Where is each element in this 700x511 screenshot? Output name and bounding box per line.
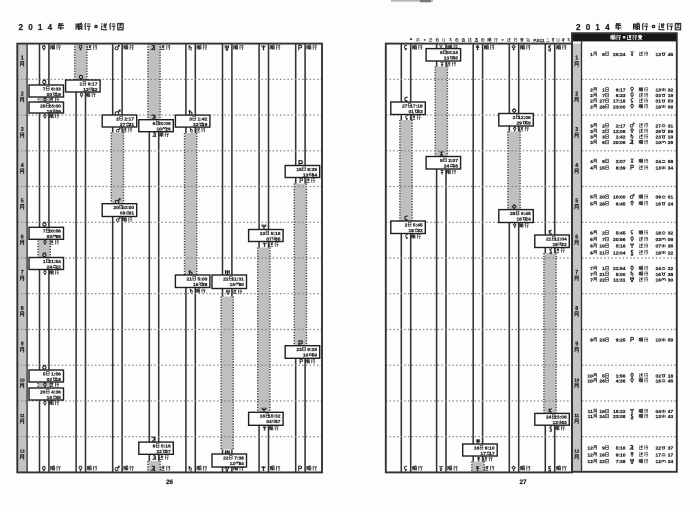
svg-text:27: 27 xyxy=(120,122,126,128)
svg-text:10: 10 xyxy=(303,353,309,359)
svg-text:6:17: 6:17 xyxy=(88,81,98,87)
svg-text:10:00: 10:00 xyxy=(613,195,626,201)
svg-text:19: 19 xyxy=(55,92,61,98)
svg-text:18: 18 xyxy=(656,250,662,256)
svg-text:4: 4 xyxy=(575,163,578,169)
svg-text:2: 2 xyxy=(576,23,581,32)
svg-text:8:39: 8:39 xyxy=(307,167,317,173)
svg-text:16: 16 xyxy=(599,452,605,458)
svg-text:58: 58 xyxy=(453,163,459,169)
svg-text:10: 10 xyxy=(20,377,25,382)
svg-text:20:56: 20:56 xyxy=(48,229,61,235)
svg-text:23: 23 xyxy=(656,135,662,141)
svg-text:32: 32 xyxy=(92,87,98,93)
svg-text:6: 6 xyxy=(575,234,578,240)
svg-text:23:08: 23:08 xyxy=(554,415,567,421)
svg-text:21: 21 xyxy=(546,236,552,242)
svg-text:28: 28 xyxy=(599,104,605,110)
svg-text:3: 3 xyxy=(575,127,578,133)
svg-text:3: 3 xyxy=(602,135,605,141)
svg-text:22: 22 xyxy=(156,449,162,455)
svg-text:20:06: 20:06 xyxy=(158,121,171,127)
svg-text:45: 45 xyxy=(668,378,674,384)
svg-text:30: 30 xyxy=(238,282,244,288)
svg-text:01: 01 xyxy=(656,99,662,105)
svg-text:22: 22 xyxy=(561,242,567,248)
svg-text:20:56: 20:56 xyxy=(613,237,626,243)
svg-text:6:45: 6:45 xyxy=(521,211,531,217)
svg-text:45: 45 xyxy=(453,55,459,61)
svg-text:10: 10 xyxy=(656,140,662,146)
svg-text:11: 11 xyxy=(574,413,579,418)
svg-text:12:06: 12:06 xyxy=(613,129,626,135)
svg-text:20:24: 20:24 xyxy=(613,52,626,58)
svg-text:53: 53 xyxy=(417,109,423,115)
svg-text:22: 22 xyxy=(223,276,229,282)
svg-text:35: 35 xyxy=(275,236,281,242)
svg-text:01: 01 xyxy=(668,195,674,201)
svg-text:12: 12 xyxy=(20,449,25,454)
svg-text:26: 26 xyxy=(40,389,46,395)
svg-text:03: 03 xyxy=(656,93,662,99)
svg-text:09: 09 xyxy=(120,211,126,217)
svg-text:37: 37 xyxy=(165,449,171,455)
svg-text:2: 2 xyxy=(21,91,24,97)
svg-text:6: 6 xyxy=(602,52,605,58)
svg-text:16: 16 xyxy=(474,445,480,451)
svg-text:34: 34 xyxy=(312,172,318,178)
svg-text:13: 13 xyxy=(444,55,450,61)
svg-text:16: 16 xyxy=(47,395,53,401)
svg-text:23: 23 xyxy=(599,338,605,344)
svg-text:2:17: 2:17 xyxy=(616,123,626,129)
svg-text:2: 2 xyxy=(590,104,593,110)
svg-text:7: 7 xyxy=(590,266,593,272)
svg-text:12:06: 12:06 xyxy=(518,115,531,121)
svg-text:3: 3 xyxy=(189,116,192,122)
svg-text:26: 26 xyxy=(599,378,605,384)
svg-text:2:17: 2:17 xyxy=(124,116,134,122)
svg-text:19: 19 xyxy=(668,93,674,99)
svg-text:20: 20 xyxy=(113,205,119,211)
svg-text:9:25: 9:25 xyxy=(616,338,626,344)
svg-text:26: 26 xyxy=(165,127,171,133)
svg-text:12: 12 xyxy=(587,446,593,452)
svg-text:1: 1 xyxy=(43,259,46,265)
svg-text:28: 28 xyxy=(510,211,516,217)
svg-text:3: 3 xyxy=(590,123,593,129)
svg-text:7: 7 xyxy=(43,86,46,92)
svg-text:4: 4 xyxy=(590,166,593,172)
svg-text:16: 16 xyxy=(656,378,662,384)
svg-text:9: 9 xyxy=(590,338,593,344)
svg-text:2: 2 xyxy=(602,123,605,129)
svg-text:21: 21 xyxy=(599,250,605,256)
svg-text:12:04: 12:04 xyxy=(554,236,567,242)
svg-text:12: 12 xyxy=(230,461,236,467)
svg-text:04: 04 xyxy=(266,419,272,425)
svg-text:1: 1 xyxy=(602,88,605,94)
svg-text:26: 26 xyxy=(166,479,174,486)
svg-text:1: 1 xyxy=(590,52,593,58)
svg-text:2: 2 xyxy=(575,91,578,97)
svg-text:2: 2 xyxy=(590,93,593,99)
svg-text:34: 34 xyxy=(668,459,674,465)
svg-text:0: 0 xyxy=(586,23,591,32)
svg-text:11: 11 xyxy=(588,414,593,420)
svg-text:59: 59 xyxy=(668,129,674,135)
svg-text:20:06: 20:06 xyxy=(613,140,626,146)
svg-text:9: 9 xyxy=(602,159,605,165)
svg-text:12: 12 xyxy=(587,459,593,465)
svg-text:10: 10 xyxy=(156,127,162,133)
svg-text:13: 13 xyxy=(656,414,662,420)
svg-text:09: 09 xyxy=(55,234,61,240)
svg-text:16: 16 xyxy=(516,216,522,222)
svg-text:24: 24 xyxy=(599,414,605,420)
svg-text:2:07: 2:07 xyxy=(448,158,458,164)
svg-text:37: 37 xyxy=(668,446,674,452)
svg-text:16: 16 xyxy=(656,277,662,283)
svg-text:7:38: 7:38 xyxy=(616,459,626,465)
svg-text:13: 13 xyxy=(656,88,662,94)
svg-text:2: 2 xyxy=(116,116,119,122)
svg-text:5: 5 xyxy=(575,199,578,205)
svg-text:16: 16 xyxy=(656,201,662,207)
svg-text:5:16: 5:16 xyxy=(271,231,281,237)
svg-text:4: 4 xyxy=(605,23,610,32)
svg-text:6: 6 xyxy=(153,121,156,127)
svg-text:24: 24 xyxy=(656,266,662,272)
svg-text:18: 18 xyxy=(55,377,61,383)
svg-text:24: 24 xyxy=(444,163,450,169)
svg-text:1: 1 xyxy=(602,266,605,272)
svg-text:29: 29 xyxy=(656,129,662,135)
svg-text:9: 9 xyxy=(153,443,156,449)
svg-text:32: 32 xyxy=(668,88,674,94)
svg-text:18: 18 xyxy=(656,104,662,110)
svg-text:5: 5 xyxy=(590,195,593,201)
svg-text:23:00: 23:00 xyxy=(613,104,626,110)
svg-text:24: 24 xyxy=(47,264,53,270)
svg-text:1: 1 xyxy=(79,81,82,87)
svg-text:17:18: 17:18 xyxy=(613,99,626,105)
svg-text:5:00: 5:00 xyxy=(616,272,626,278)
svg-text:15: 15 xyxy=(599,166,605,172)
svg-text:10: 10 xyxy=(599,244,605,250)
svg-text:38: 38 xyxy=(202,282,208,288)
svg-text:7: 7 xyxy=(575,270,578,276)
svg-text:9: 9 xyxy=(575,342,578,348)
svg-text:28: 28 xyxy=(40,103,46,109)
svg-text:7: 7 xyxy=(590,277,593,283)
svg-text:17: 17 xyxy=(489,451,495,457)
svg-text:7: 7 xyxy=(21,270,24,276)
svg-text:12: 12 xyxy=(656,459,662,465)
svg-text:34: 34 xyxy=(668,166,674,172)
svg-text:6:33: 6:33 xyxy=(616,93,626,99)
svg-text:2: 2 xyxy=(590,88,593,94)
svg-text:4: 4 xyxy=(48,23,53,32)
svg-text:19: 19 xyxy=(202,122,208,128)
svg-text:5:00: 5:00 xyxy=(198,276,208,282)
svg-text:02: 02 xyxy=(47,377,53,383)
svg-text:16: 16 xyxy=(656,272,662,278)
svg-text:59: 59 xyxy=(312,353,318,359)
svg-text:6:45: 6:45 xyxy=(616,201,626,207)
svg-text:12:04: 12:04 xyxy=(613,250,626,256)
svg-text:11:31: 11:31 xyxy=(613,277,626,283)
svg-text:17: 17 xyxy=(668,452,674,458)
svg-text:09: 09 xyxy=(55,109,61,115)
svg-text:23: 23 xyxy=(193,122,199,128)
svg-text:1:42: 1:42 xyxy=(616,135,626,141)
svg-text:2: 2 xyxy=(19,23,24,32)
svg-text:13: 13 xyxy=(83,87,89,93)
svg-text:9: 9 xyxy=(21,342,24,348)
svg-text:18: 18 xyxy=(47,109,53,115)
svg-text:13: 13 xyxy=(552,420,558,426)
svg-text:4:36: 4:36 xyxy=(616,378,626,384)
svg-text:9:10: 9:10 xyxy=(485,445,495,451)
svg-text:11: 11 xyxy=(20,413,25,418)
svg-text:10:00: 10:00 xyxy=(122,205,135,211)
svg-text:03: 03 xyxy=(47,234,53,240)
svg-text:7: 7 xyxy=(43,229,46,235)
svg-text:20:24: 20:24 xyxy=(445,50,458,56)
svg-text:58: 58 xyxy=(668,159,674,165)
svg-text:17: 17 xyxy=(656,452,662,458)
svg-text:30: 30 xyxy=(668,277,674,283)
svg-text:13: 13 xyxy=(656,166,662,172)
svg-text:1: 1 xyxy=(38,23,43,32)
svg-text:20: 20 xyxy=(599,195,605,201)
svg-text:17:18: 17:18 xyxy=(410,103,423,109)
svg-text:6: 6 xyxy=(590,237,593,243)
svg-text:01: 01 xyxy=(408,109,414,115)
svg-text:4: 4 xyxy=(590,159,593,165)
svg-text:8: 8 xyxy=(21,306,24,312)
svg-text:27: 27 xyxy=(656,123,662,129)
svg-text:3: 3 xyxy=(590,129,593,135)
svg-text:22: 22 xyxy=(599,277,605,283)
svg-text:1: 1 xyxy=(21,56,24,62)
svg-text:9:10: 9:10 xyxy=(616,452,626,458)
svg-text:23:00: 23:00 xyxy=(48,103,61,109)
svg-text:9:25: 9:25 xyxy=(307,347,317,353)
svg-text:24: 24 xyxy=(546,415,552,421)
svg-text:22: 22 xyxy=(656,446,662,452)
svg-text:3: 3 xyxy=(21,127,24,133)
svg-text:22: 22 xyxy=(668,266,674,272)
svg-text:16: 16 xyxy=(193,282,199,288)
svg-text:22: 22 xyxy=(668,250,674,256)
svg-text:21: 21 xyxy=(187,276,193,282)
svg-text:5:16: 5:16 xyxy=(616,244,626,250)
svg-text:15:32: 15:32 xyxy=(268,414,281,420)
svg-text:03: 03 xyxy=(656,237,662,243)
svg-text:5: 5 xyxy=(43,371,46,377)
svg-text:32: 32 xyxy=(668,231,674,237)
svg-text:6: 6 xyxy=(440,50,443,56)
svg-text:2: 2 xyxy=(405,222,408,228)
svg-text:10: 10 xyxy=(260,231,266,237)
svg-text:34: 34 xyxy=(238,461,244,467)
svg-text:01: 01 xyxy=(129,211,135,217)
svg-text:59: 59 xyxy=(668,338,674,344)
svg-text:27: 27 xyxy=(519,479,527,486)
svg-text:07: 07 xyxy=(266,236,272,242)
svg-text:27: 27 xyxy=(402,103,408,109)
svg-text:03: 03 xyxy=(47,92,53,98)
svg-text:16: 16 xyxy=(230,282,236,288)
svg-text:19: 19 xyxy=(668,135,674,141)
svg-text:7: 7 xyxy=(590,272,593,278)
svg-text:2: 2 xyxy=(513,115,516,121)
svg-text:6:33: 6:33 xyxy=(51,86,61,92)
svg-text:59: 59 xyxy=(525,120,531,126)
svg-text:27: 27 xyxy=(599,99,605,105)
svg-text:18: 18 xyxy=(656,231,662,237)
svg-text:43: 43 xyxy=(668,414,674,420)
svg-text:5:16: 5:16 xyxy=(161,443,171,449)
svg-text:6: 6 xyxy=(602,140,605,146)
svg-text:7:38: 7:38 xyxy=(234,455,244,461)
svg-text:21:54: 21:54 xyxy=(48,259,61,265)
svg-text:0: 0 xyxy=(28,23,33,32)
svg-text:18: 18 xyxy=(408,228,414,234)
svg-text:22: 22 xyxy=(55,264,61,270)
svg-text:07: 07 xyxy=(656,244,662,250)
svg-text:31: 31 xyxy=(129,122,135,128)
svg-text:5: 5 xyxy=(590,201,593,207)
svg-text:53: 53 xyxy=(668,99,674,105)
svg-text:32: 32 xyxy=(417,228,423,234)
svg-text:8: 8 xyxy=(575,306,578,312)
svg-text:9: 9 xyxy=(440,158,443,164)
svg-text:12: 12 xyxy=(587,452,593,458)
svg-text:18: 18 xyxy=(552,242,558,248)
svg-text:2: 2 xyxy=(602,129,605,135)
svg-text:5:16: 5:16 xyxy=(616,446,626,452)
svg-text:09: 09 xyxy=(668,104,674,110)
svg-text:17: 17 xyxy=(480,451,486,457)
svg-text:28: 28 xyxy=(599,201,605,207)
svg-text:11:31: 11:31 xyxy=(232,276,245,282)
svg-text:13: 13 xyxy=(303,172,309,178)
svg-text:24: 24 xyxy=(656,159,662,165)
svg-text:47: 47 xyxy=(275,419,281,425)
svg-text:12: 12 xyxy=(574,449,579,454)
svg-text:1: 1 xyxy=(575,56,578,62)
svg-text:15: 15 xyxy=(296,167,302,173)
svg-text:2: 2 xyxy=(602,231,605,237)
svg-text:9: 9 xyxy=(602,446,605,452)
svg-text:31: 31 xyxy=(668,123,674,129)
svg-text:6: 6 xyxy=(590,231,593,237)
svg-text:09: 09 xyxy=(656,195,662,201)
svg-text:10: 10 xyxy=(656,338,662,344)
svg-text:26: 26 xyxy=(668,140,674,146)
svg-text:P.511: P.511 xyxy=(533,38,545,43)
svg-text:10: 10 xyxy=(574,377,579,382)
svg-text:21: 21 xyxy=(599,272,605,278)
svg-text:21:54: 21:54 xyxy=(613,266,626,272)
svg-text:45: 45 xyxy=(55,395,61,401)
svg-text:13: 13 xyxy=(656,52,662,58)
svg-text:09: 09 xyxy=(668,237,674,243)
svg-text:22: 22 xyxy=(599,459,605,465)
svg-text:1: 1 xyxy=(595,23,600,32)
svg-text:4: 4 xyxy=(21,163,24,169)
svg-text:23: 23 xyxy=(296,347,302,353)
svg-text:45: 45 xyxy=(668,52,674,58)
svg-text:38: 38 xyxy=(668,272,674,278)
svg-text:2: 2 xyxy=(590,99,593,105)
svg-text:29: 29 xyxy=(516,120,522,126)
svg-text:6:17: 6:17 xyxy=(616,88,626,94)
svg-text:16: 16 xyxy=(260,414,266,420)
svg-text:1:56: 1:56 xyxy=(51,371,61,377)
svg-text:3: 3 xyxy=(590,140,593,146)
svg-text:6: 6 xyxy=(590,250,593,256)
svg-text:24: 24 xyxy=(668,201,674,207)
svg-text:2:07: 2:07 xyxy=(616,159,626,165)
svg-text:35: 35 xyxy=(668,244,674,250)
svg-text:23:08: 23:08 xyxy=(613,414,626,420)
svg-text:10: 10 xyxy=(587,378,593,384)
svg-text:43: 43 xyxy=(561,420,567,426)
svg-text:4:36: 4:36 xyxy=(51,389,61,395)
svg-text:22: 22 xyxy=(223,455,229,461)
svg-text:7: 7 xyxy=(602,237,605,243)
svg-text:5: 5 xyxy=(21,199,24,205)
svg-text:3: 3 xyxy=(590,135,593,141)
svg-text:5:45: 5:45 xyxy=(413,222,423,228)
svg-text:24: 24 xyxy=(525,216,531,222)
svg-text:7: 7 xyxy=(602,93,605,99)
svg-text:5:45: 5:45 xyxy=(616,231,626,237)
svg-text:6: 6 xyxy=(21,234,24,240)
svg-text:8:39: 8:39 xyxy=(616,166,626,172)
svg-text:1:42: 1:42 xyxy=(198,116,208,122)
svg-text:6: 6 xyxy=(590,244,593,250)
